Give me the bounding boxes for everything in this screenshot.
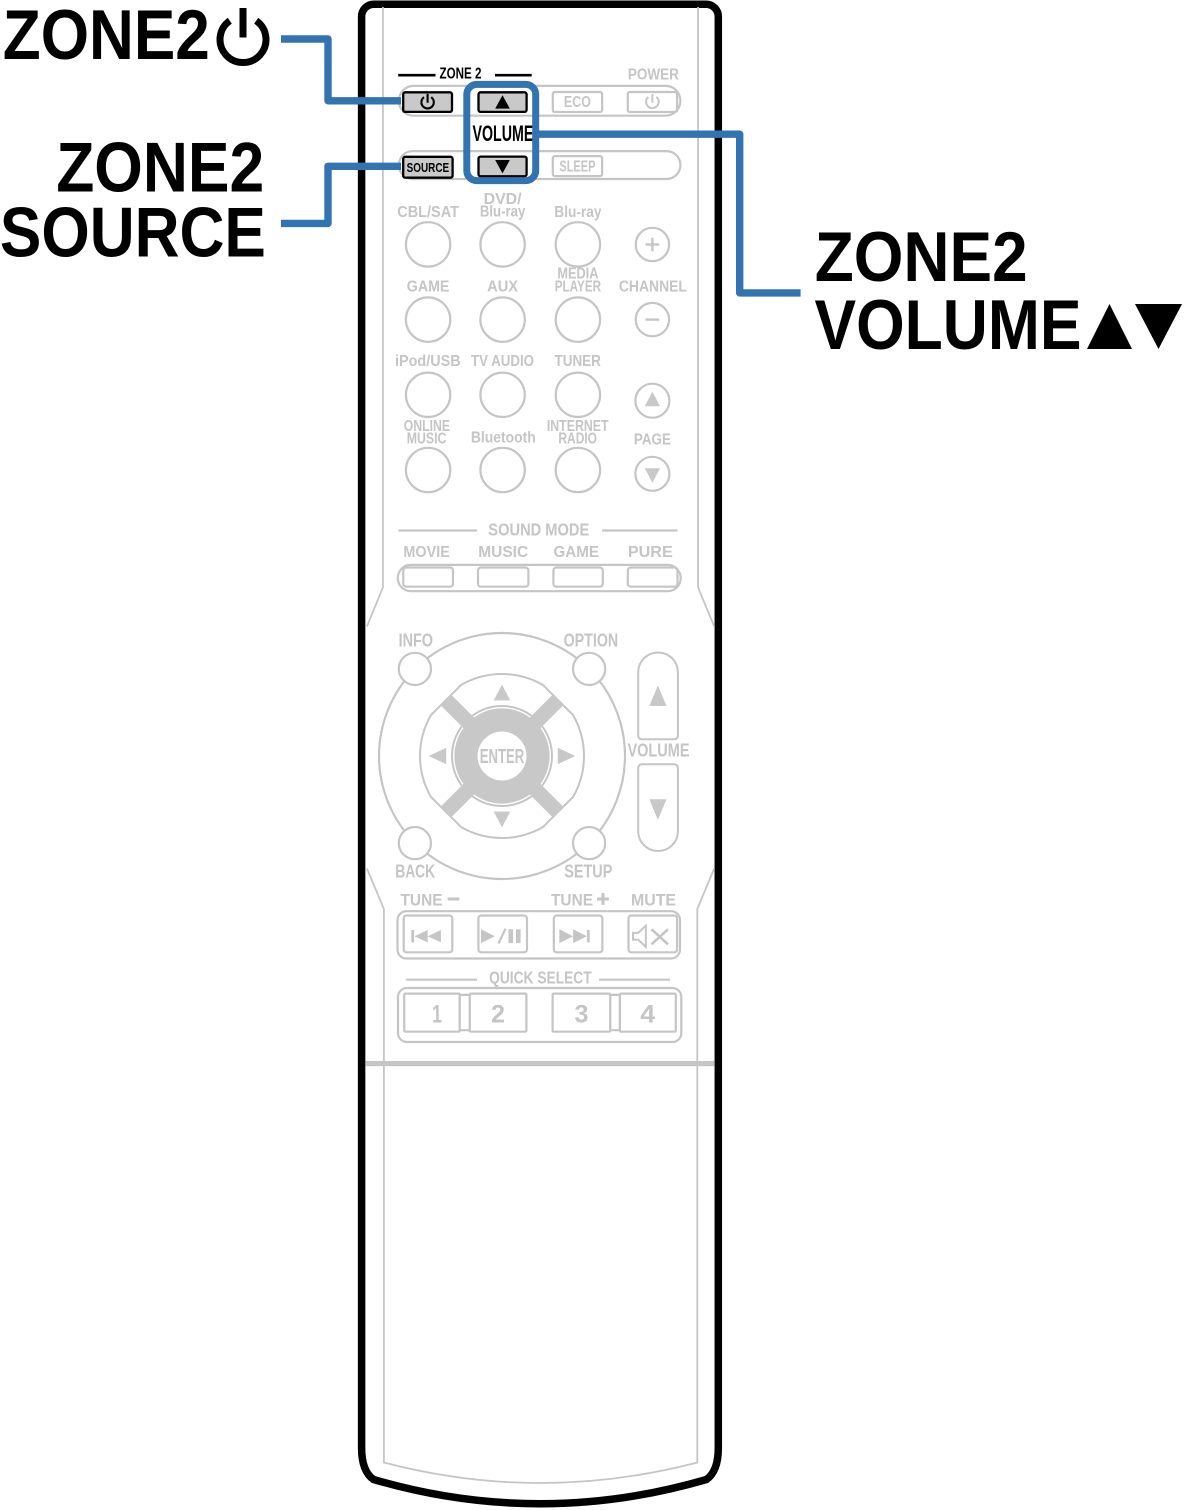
svg-text:POWER: POWER [628,67,679,84]
svg-text:INFO: INFO [399,629,433,650]
svg-text:PAGE: PAGE [634,432,671,449]
svg-text:Blu-ray: Blu-ray [554,204,601,221]
svg-text:ZONE 2: ZONE 2 [440,65,482,82]
svg-text:SOURCE: SOURCE [407,160,450,175]
svg-text:PLAYER: PLAYER [555,278,602,295]
svg-text:CHANNEL: CHANNEL [619,278,687,295]
svg-text:Blu-ray: Blu-ray [480,204,526,221]
svg-text:1: 1 [432,1000,442,1028]
svg-text:SOURCE: SOURCE [0,193,266,272]
svg-text:SOUND MODE: SOUND MODE [488,519,589,539]
svg-text:VOLUME: VOLUME [473,121,534,146]
svg-text:VOLUME: VOLUME [628,741,690,761]
svg-text:BACK: BACK [395,861,435,882]
svg-text:MOVIE: MOVIE [403,544,450,561]
svg-text:GAME: GAME [407,278,450,295]
svg-text:ZONE2: ZONE2 [3,0,210,74]
svg-text:MUSIC: MUSIC [478,544,528,561]
svg-text:iPod/USB: iPod/USB [395,353,461,370]
svg-text:GAME: GAME [553,544,599,561]
svg-text:TV AUDIO: TV AUDIO [471,353,534,370]
svg-text:AUX: AUX [487,278,518,295]
svg-text:RADIO: RADIO [558,430,597,447]
svg-text:SETUP: SETUP [564,861,612,882]
svg-text:TUNE: TUNE [401,892,443,910]
svg-text:PURE: PURE [628,544,673,561]
svg-text:CBL/SAT: CBL/SAT [397,204,459,221]
svg-text:TUNER: TUNER [555,353,602,370]
svg-text:Bluetooth: Bluetooth [471,430,536,447]
svg-text:SLEEP: SLEEP [559,158,595,175]
svg-text:TUNE: TUNE [551,892,593,910]
svg-text:QUICK SELECT: QUICK SELECT [489,968,592,988]
svg-text:4: 4 [640,1000,655,1028]
svg-text:ENTER: ENTER [480,745,525,768]
svg-text:3: 3 [575,1000,589,1028]
svg-text:OPTION: OPTION [564,629,619,650]
svg-text:MUTE: MUTE [631,892,676,910]
svg-text:MUSIC: MUSIC [407,430,447,447]
svg-text:2: 2 [491,1000,505,1028]
svg-text:VOLUME: VOLUME [815,285,1082,364]
svg-text:ECO: ECO [564,94,591,111]
